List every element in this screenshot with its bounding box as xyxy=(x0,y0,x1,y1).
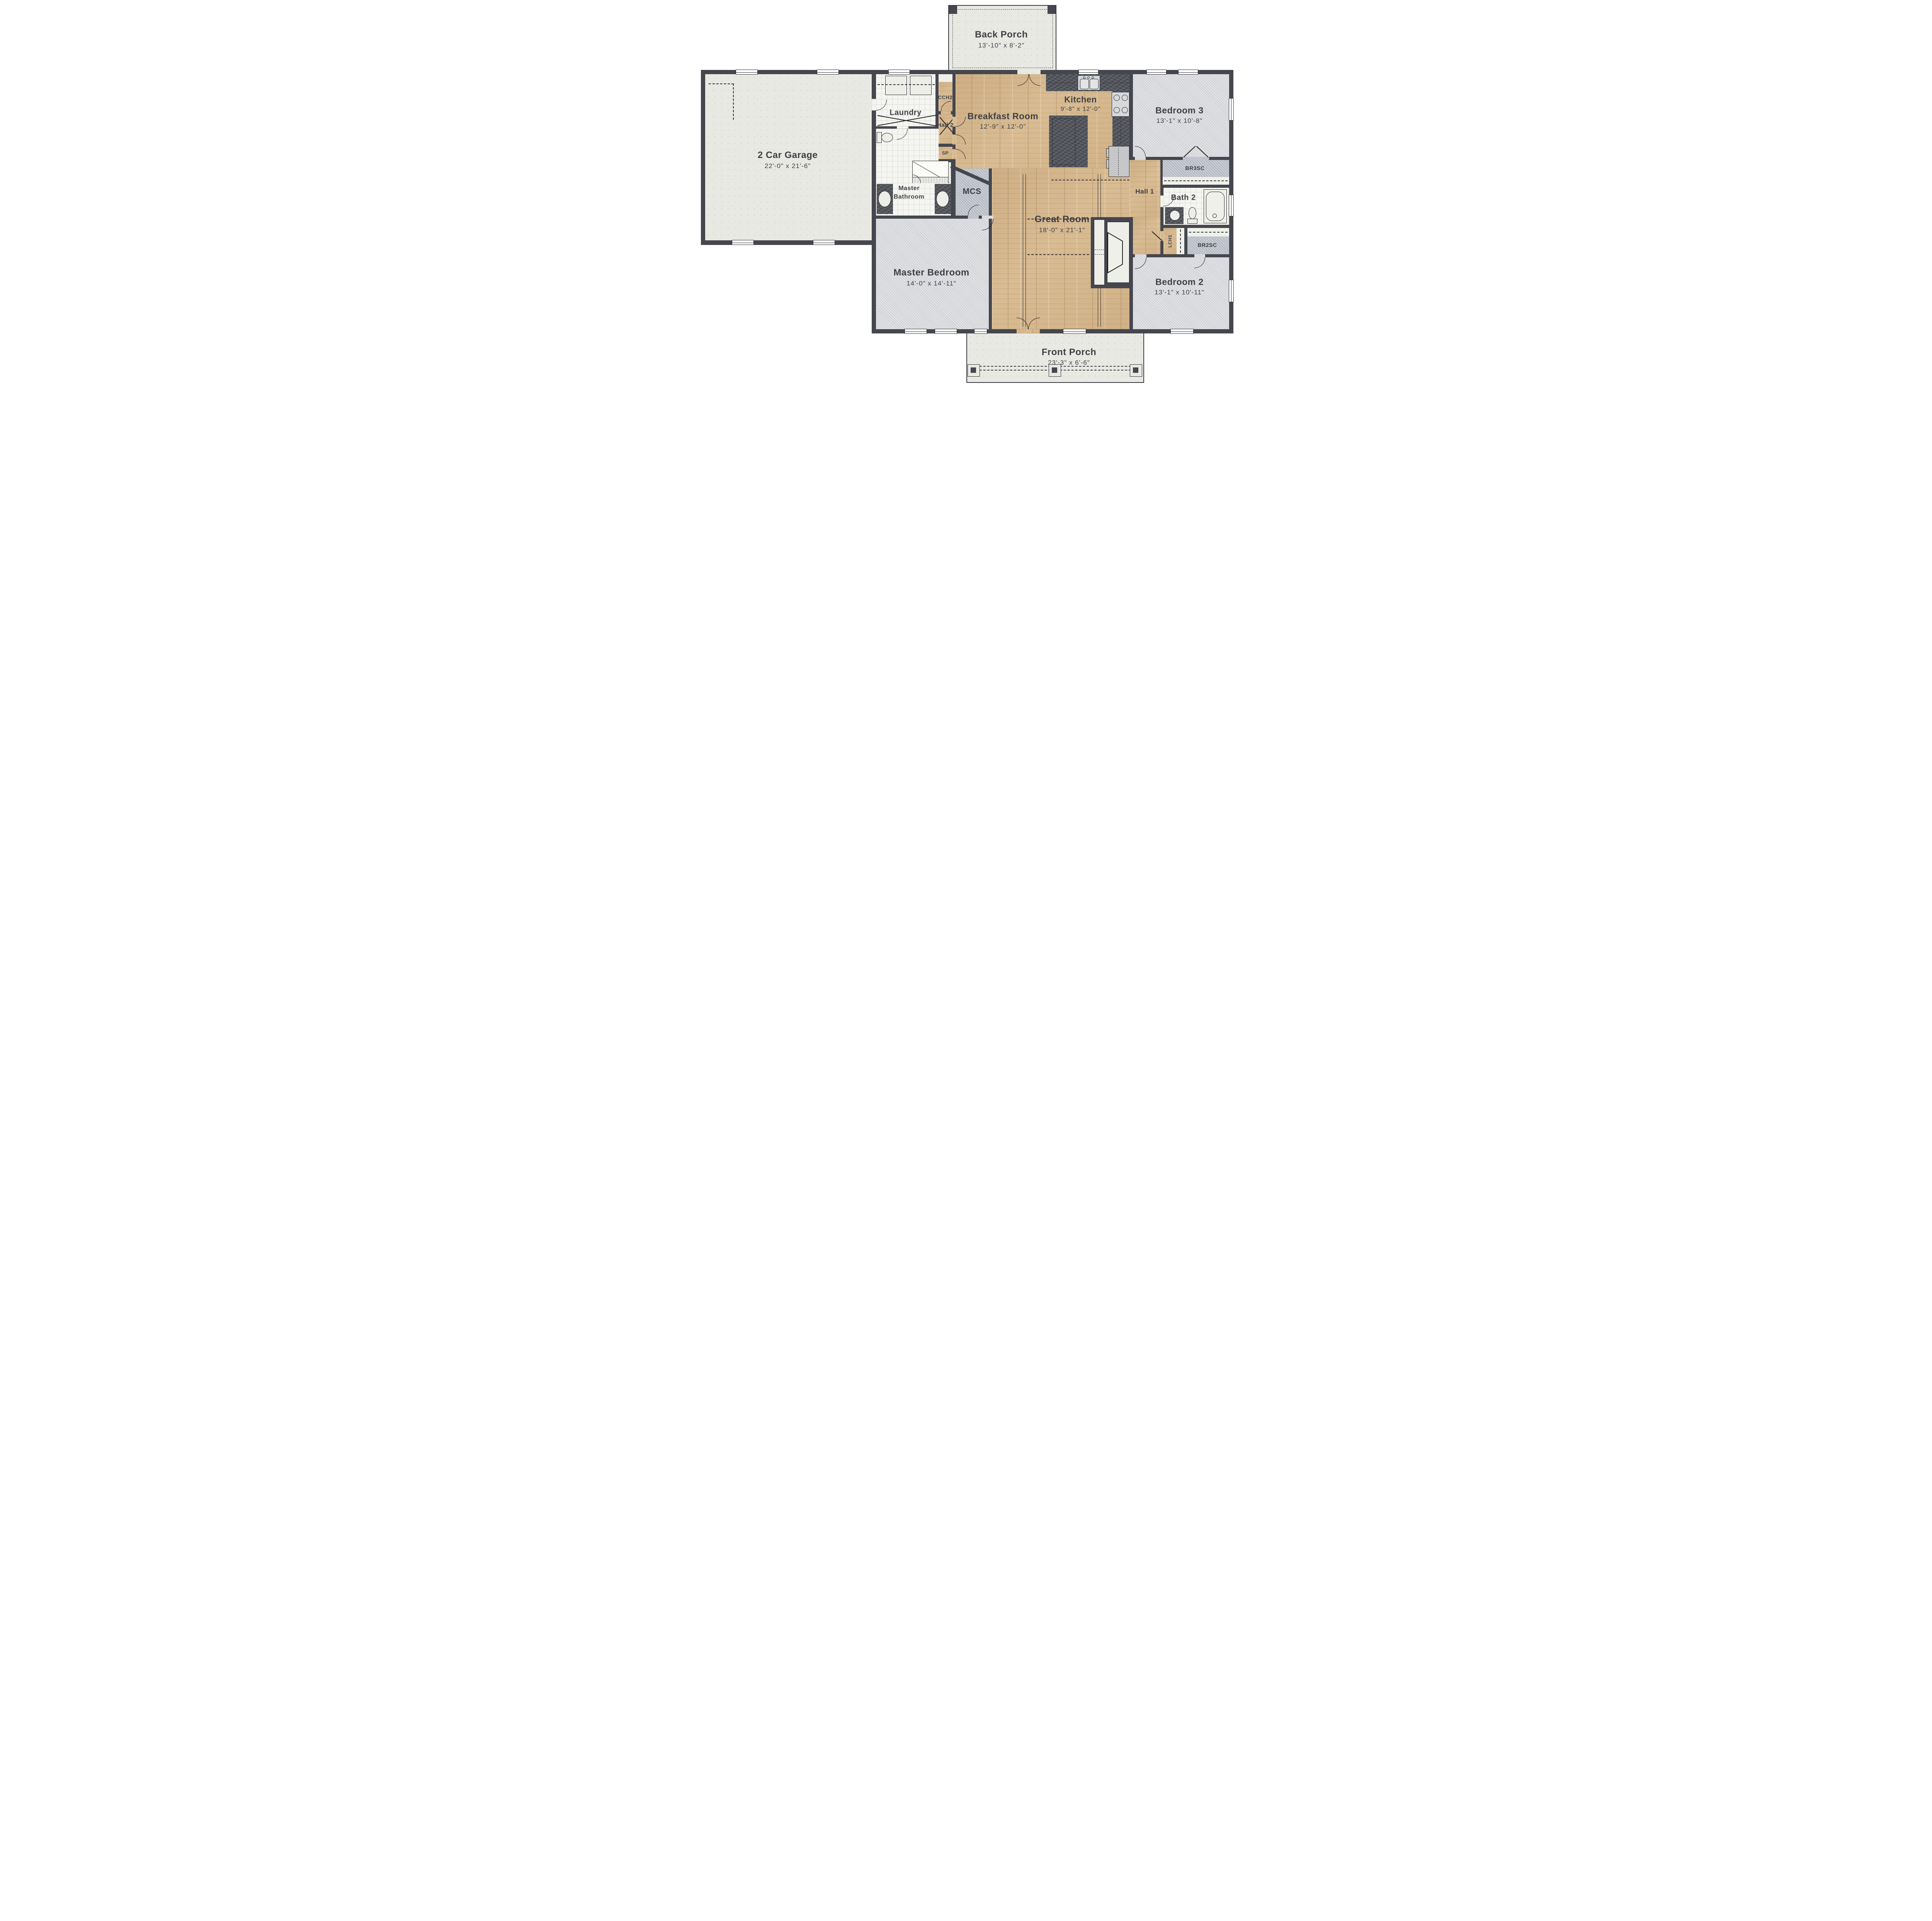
label-bedroom2: Bedroom 2 xyxy=(1155,277,1204,287)
window xyxy=(732,240,754,245)
door-gap xyxy=(952,134,956,144)
label-hall2: Hall 2 xyxy=(937,122,954,129)
toilet-fixture-bowl xyxy=(1189,207,1196,219)
window xyxy=(1229,280,1234,302)
door-gap xyxy=(1160,195,1163,207)
label-back-porch-dims: 13'-10" x 8'-2" xyxy=(978,42,1025,49)
label-mcs: MCS xyxy=(963,187,981,196)
window xyxy=(888,70,910,75)
door-gap xyxy=(941,111,951,114)
ceiling-beam-line xyxy=(1100,174,1101,217)
ceiling-beam-line xyxy=(1026,174,1026,327)
label-back-porch: Back Porch xyxy=(975,29,1028,40)
toilet-fixture-bowl xyxy=(881,133,893,142)
back-porch-post xyxy=(1048,6,1056,14)
dryer-fixture xyxy=(910,76,932,95)
floor-plan: Back Porch 13'-10" x 8'-2" 2 Car Garage … xyxy=(696,2,1236,386)
label-lch1: LCH1 xyxy=(1167,235,1173,247)
window xyxy=(1229,98,1234,121)
label-garage-dims: 22'-0" x 21'-6" xyxy=(765,162,811,170)
label-garage: 2 Car Garage xyxy=(758,150,818,161)
door-gap xyxy=(1135,157,1146,160)
window xyxy=(1146,70,1167,75)
window xyxy=(1078,70,1099,75)
ceiling-beam-line xyxy=(1023,174,1024,327)
label-master-bedroom: Master Bedroom xyxy=(893,267,969,278)
label-front-porch-dims: 23'-3" x 6'-6" xyxy=(1048,359,1090,367)
toilet-fixture xyxy=(1187,219,1197,224)
cabinet-line xyxy=(1102,83,1127,83)
label-cch2: CCH2 xyxy=(938,95,952,100)
bathtub-fixture xyxy=(1204,189,1227,223)
label-bedroom3: Bedroom 3 xyxy=(1155,105,1204,116)
room-hall1-south xyxy=(1129,217,1160,254)
window xyxy=(974,329,987,334)
label-kitchen-dims: 9'-8" x 12'-0" xyxy=(1061,106,1101,113)
door-gap xyxy=(968,216,979,219)
kitchen-soffit-line xyxy=(1051,180,1129,180)
door-gap xyxy=(1017,329,1040,333)
laundry-shelf-line xyxy=(878,84,935,85)
refrigerator-handle xyxy=(1106,159,1109,168)
cabinet-gap-line xyxy=(1095,254,1104,255)
label-great-room-dims: 18'-0" x 21'-1" xyxy=(1039,226,1085,234)
refrigerator-handle xyxy=(1106,148,1109,158)
label-br2sc: BR2SC xyxy=(1198,242,1217,248)
br2sc-shelf-line xyxy=(1189,232,1228,233)
window xyxy=(1178,70,1198,75)
window xyxy=(1063,329,1086,334)
label-bedroom2-dims: 13'-1" x 10'-11" xyxy=(1155,289,1204,296)
vanity-sink-fixture xyxy=(1170,210,1180,221)
door-gap xyxy=(1183,157,1209,160)
back-porch-post xyxy=(949,6,957,14)
toilet-fixture xyxy=(877,132,882,143)
label-front-porch: Front Porch xyxy=(1042,347,1097,358)
ceiling-beam-line xyxy=(1098,288,1099,327)
cch2-shelf xyxy=(939,74,952,83)
label-laundry: Laundry xyxy=(889,109,921,117)
door-gap xyxy=(1017,70,1041,74)
door-gap xyxy=(1135,254,1146,257)
front-porch-post-core xyxy=(971,367,976,373)
front-porch-post-core xyxy=(1133,367,1138,373)
door-gap xyxy=(952,149,956,159)
vanity-sink-fixture xyxy=(936,191,949,207)
fireplace-cabinet xyxy=(1094,219,1105,285)
window xyxy=(1170,329,1194,334)
br3sc-shelf-line xyxy=(1164,180,1228,181)
window xyxy=(1229,195,1234,216)
door-gap xyxy=(872,99,876,110)
label-great-room: Great Room xyxy=(1034,214,1089,225)
tv-fixture xyxy=(1107,222,1129,283)
window xyxy=(736,70,758,75)
label-bath2: Bath 2 xyxy=(1171,194,1196,202)
refrigerator-fixture xyxy=(1109,146,1129,177)
label-master-bedroom-dims: 14'-0" x 14'-11" xyxy=(906,280,956,287)
window xyxy=(813,240,835,245)
label-kitchen: Kitchen xyxy=(1064,95,1097,105)
label-master-bathroom-2: Bathroom xyxy=(894,194,925,201)
label-bedroom3-dims: 13'-1" x 10'-8" xyxy=(1156,117,1203,125)
cabinet-gap-line xyxy=(1095,250,1104,250)
ceiling-beam-line xyxy=(1100,288,1101,327)
tray-ceiling-line xyxy=(1027,254,1097,255)
door-gap xyxy=(982,216,993,219)
window xyxy=(905,329,927,334)
island-cabinet-lines xyxy=(1052,119,1075,165)
stove-fixture xyxy=(1112,92,1129,117)
ceiling-beam-line xyxy=(1098,174,1099,217)
cabinet-line xyxy=(1048,83,1075,83)
label-hall1: Hall 1 xyxy=(1135,188,1154,195)
window xyxy=(935,329,957,334)
label-br3sc: BR3SC xyxy=(1185,165,1205,171)
vanity-sink-fixture xyxy=(878,191,891,207)
garage-storage-outline xyxy=(709,83,734,120)
label-breakfast-dims: 12'-9" x 12'-0" xyxy=(980,123,1026,131)
label-master-bathroom-1: Master xyxy=(898,185,920,192)
kitchen-sink-fixture xyxy=(1078,75,1100,90)
lch1-shelf-line xyxy=(1180,229,1181,253)
washer-fixture xyxy=(885,76,907,95)
window xyxy=(817,70,839,75)
front-porch-post-core xyxy=(1052,367,1057,373)
label-breakfast: Breakfast Room xyxy=(968,111,1038,122)
label-sp: SP xyxy=(942,150,949,156)
door-gap xyxy=(1194,254,1205,257)
